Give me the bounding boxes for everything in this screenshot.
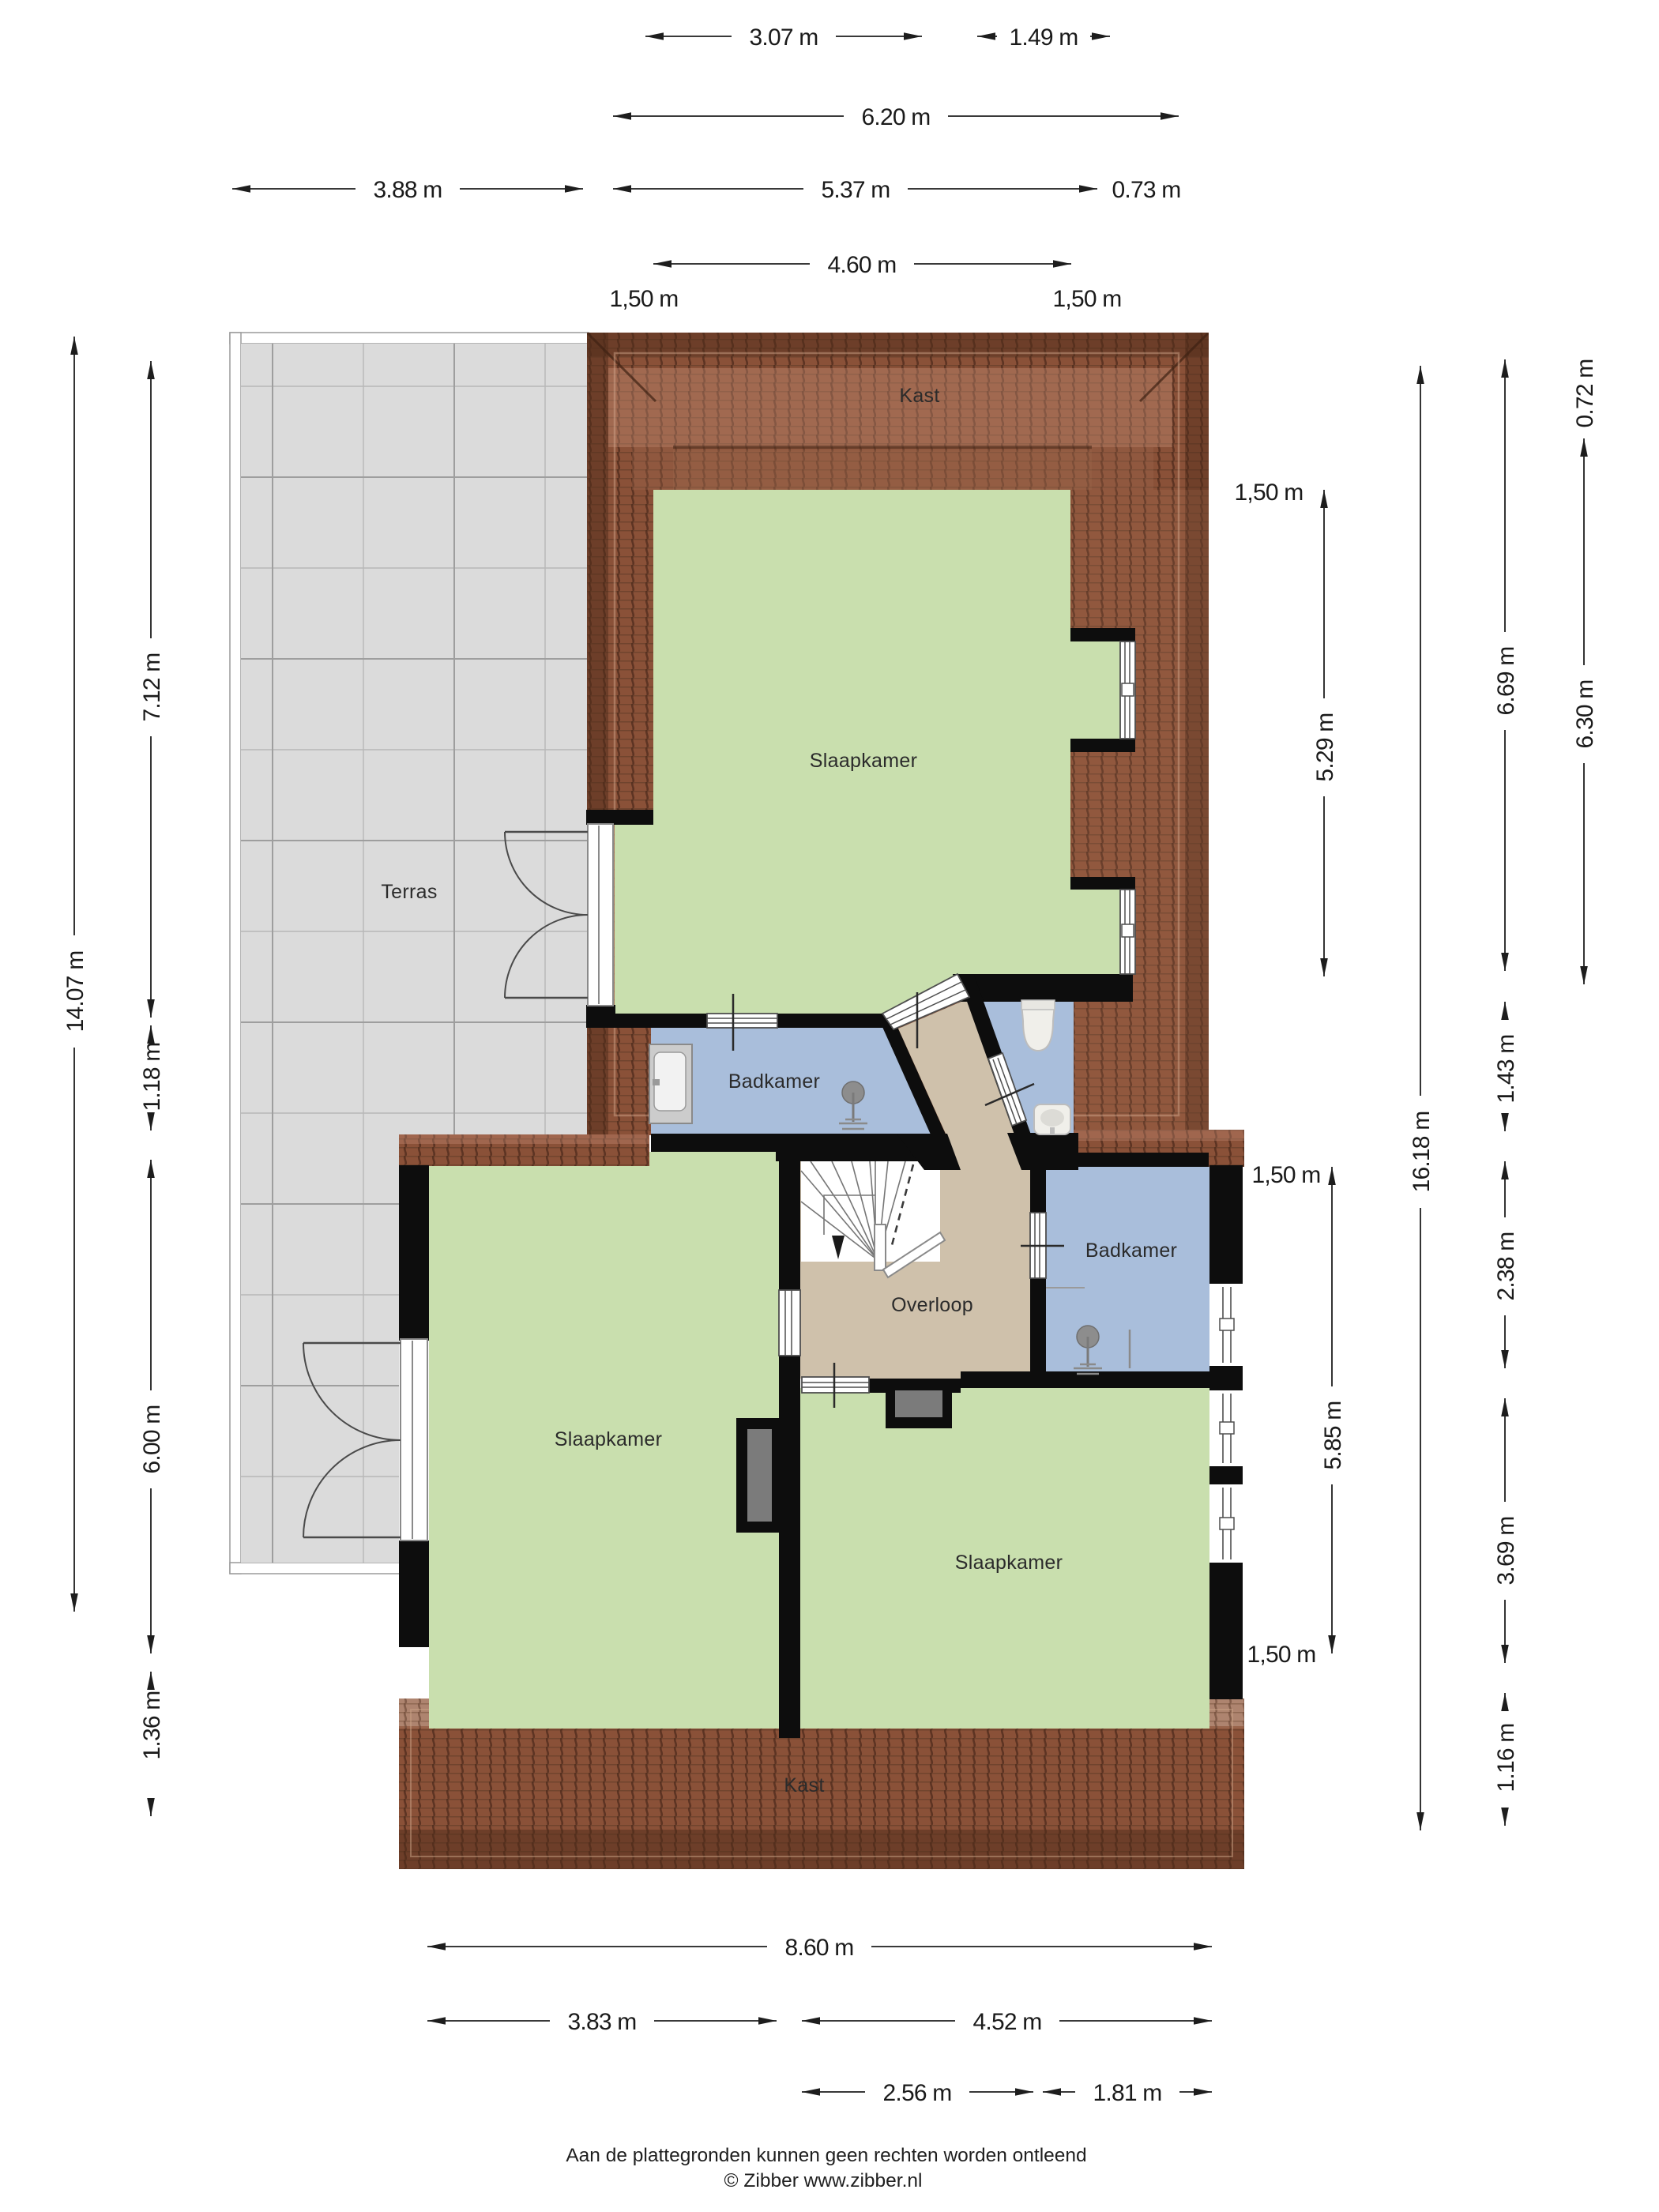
svg-text:Slaapkamer: Slaapkamer <box>955 1552 1063 1574</box>
svg-text:1,50 m: 1,50 m <box>1235 480 1303 506</box>
svg-text:Terras: Terras <box>381 881 437 903</box>
svg-text:8.60 m: 8.60 m <box>785 1935 854 1961</box>
svg-text:0.73 m: 0.73 m <box>1112 177 1181 203</box>
svg-text:© Zibber www.zibber.nl: © Zibber www.zibber.nl <box>724 2170 923 2191</box>
svg-text:Badkamer: Badkamer <box>1085 1240 1177 1262</box>
svg-text:Slaapkamer: Slaapkamer <box>810 750 917 772</box>
svg-text:Aan de plattegronden kunnen ge: Aan de plattegronden kunnen geen rechten… <box>566 2145 1086 2166</box>
svg-text:1,50 m: 1,50 m <box>610 286 679 312</box>
svg-text:1,50 m: 1,50 m <box>1053 286 1122 312</box>
svg-text:5.37 m: 5.37 m <box>822 177 890 203</box>
svg-text:3.07 m: 3.07 m <box>750 24 818 51</box>
svg-text:0.72 m: 0.72 m <box>1572 359 1598 428</box>
svg-text:6.30 m: 6.30 m <box>1572 680 1598 749</box>
svg-text:1.18 m: 1.18 m <box>139 1043 165 1112</box>
svg-text:Kast: Kast <box>784 1774 824 1796</box>
svg-text:1.49 m: 1.49 m <box>1010 24 1078 51</box>
svg-text:1.16 m: 1.16 m <box>1493 1724 1519 1793</box>
svg-text:3.88 m: 3.88 m <box>374 177 442 203</box>
svg-text:4.52 m: 4.52 m <box>973 2009 1042 2035</box>
svg-text:2.38 m: 2.38 m <box>1493 1232 1519 1301</box>
svg-text:1.36 m: 1.36 m <box>139 1691 165 1760</box>
svg-text:5.85 m: 5.85 m <box>1320 1401 1346 1470</box>
svg-text:6.20 m: 6.20 m <box>862 104 931 130</box>
svg-text:1.81 m: 1.81 m <box>1093 2080 1162 2106</box>
svg-text:Overloop: Overloop <box>891 1294 973 1316</box>
svg-text:3.83 m: 3.83 m <box>568 2009 637 2035</box>
svg-text:16.18 m: 16.18 m <box>1409 1112 1435 1193</box>
svg-text:14.07 m: 14.07 m <box>62 951 88 1033</box>
svg-text:6.00 m: 6.00 m <box>139 1405 165 1474</box>
svg-text:1,50 m: 1,50 m <box>1252 1162 1321 1188</box>
svg-text:1,50 m: 1,50 m <box>1247 1642 1316 1668</box>
svg-text:Badkamer: Badkamer <box>728 1070 820 1093</box>
svg-text:2.56 m: 2.56 m <box>883 2080 952 2106</box>
svg-text:Slaapkamer: Slaapkamer <box>555 1428 662 1450</box>
svg-text:Kast: Kast <box>899 385 939 407</box>
svg-text:1.43 m: 1.43 m <box>1493 1035 1519 1104</box>
svg-text:6.69 m: 6.69 m <box>1493 647 1519 716</box>
svg-text:4.60 m: 4.60 m <box>828 252 897 278</box>
svg-text:5.29 m: 5.29 m <box>1312 713 1338 782</box>
svg-text:3.69 m: 3.69 m <box>1493 1517 1519 1586</box>
svg-text:7.12 m: 7.12 m <box>139 653 165 722</box>
